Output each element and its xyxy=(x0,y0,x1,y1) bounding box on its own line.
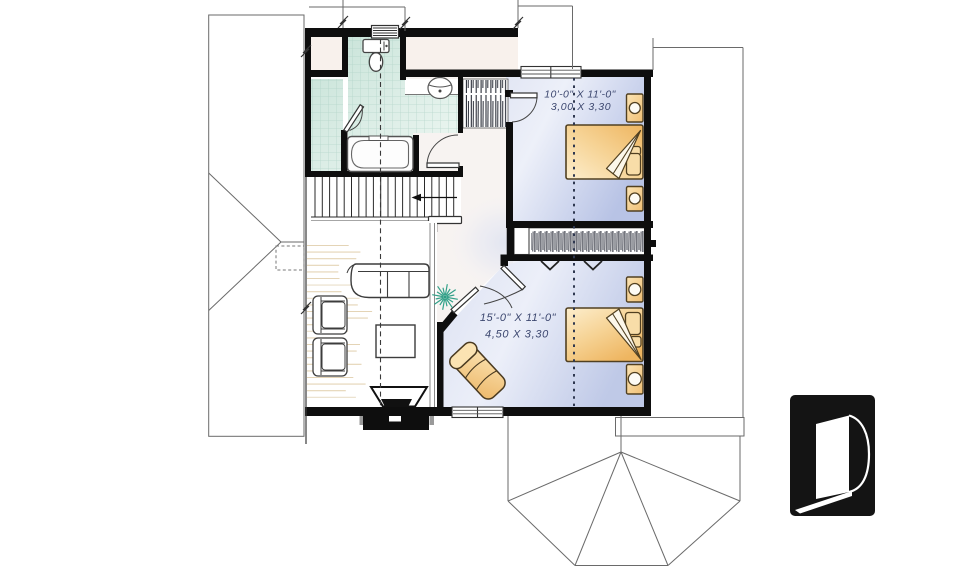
svg-text:4,50 X 3,30: 4,50 X 3,30 xyxy=(485,329,549,341)
svg-text:3,00 X 3,30: 3,00 X 3,30 xyxy=(551,101,611,113)
svg-text:10'-0" X 11'-0": 10'-0" X 11'-0" xyxy=(544,89,616,101)
svg-text:15'-0" X 11'-0": 15'-0" X 11'-0" xyxy=(480,312,557,324)
